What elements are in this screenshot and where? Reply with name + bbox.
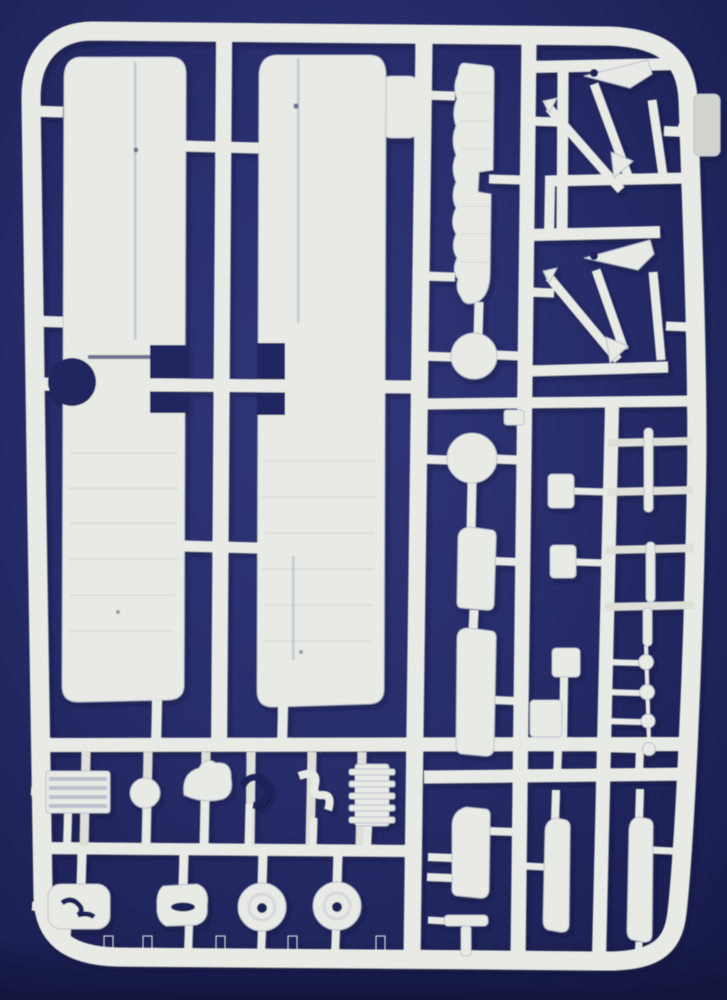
thin-strip-3 bbox=[643, 608, 652, 646]
fitting-hole-bottom bbox=[590, 252, 598, 260]
clip-part bbox=[504, 410, 524, 425]
runner-r5 bbox=[420, 401, 688, 404]
side-tab bbox=[694, 94, 720, 156]
slab-lower bbox=[456, 628, 496, 756]
connector-rect-1 bbox=[548, 474, 574, 508]
runner-h-mid bbox=[40, 744, 690, 745]
runner-r1 bbox=[528, 64, 676, 67]
connector-rect-4 bbox=[530, 700, 562, 737]
thin-strip-2 bbox=[646, 542, 655, 602]
runner-h-low-left bbox=[42, 848, 420, 851]
wheel-left bbox=[238, 883, 286, 931]
slotted-part bbox=[157, 884, 208, 926]
blade-slab-1 bbox=[452, 807, 490, 898]
sprue-photo-canvas bbox=[0, 0, 727, 1000]
wing-left-quarter-cut bbox=[48, 358, 96, 406]
pan-part bbox=[48, 884, 110, 929]
runner-r4 bbox=[528, 367, 668, 371]
slab-upper bbox=[457, 527, 496, 610]
wing-right-notch bbox=[257, 343, 285, 415]
connector-rect-3 bbox=[552, 648, 580, 677]
disc-small bbox=[451, 333, 497, 379]
sprue-photo bbox=[0, 0, 727, 1000]
wheel-right bbox=[313, 882, 361, 930]
connector-rect-2 bbox=[550, 545, 576, 578]
blade-slab-3 bbox=[627, 817, 653, 942]
runner-vertical-b bbox=[412, 37, 424, 955]
fitting-hole-top bbox=[590, 69, 598, 77]
cylinder-block bbox=[349, 764, 395, 826]
radiator-block bbox=[46, 771, 110, 813]
thin-strip-1 bbox=[644, 428, 653, 512]
blade-slab-2 bbox=[543, 818, 570, 932]
wing-left-panel-cut bbox=[88, 355, 150, 359]
disc-large bbox=[447, 433, 497, 483]
comb-rung-4 bbox=[605, 605, 694, 607]
runner-rail-e1 bbox=[562, 70, 563, 233]
ball-part bbox=[130, 778, 160, 808]
